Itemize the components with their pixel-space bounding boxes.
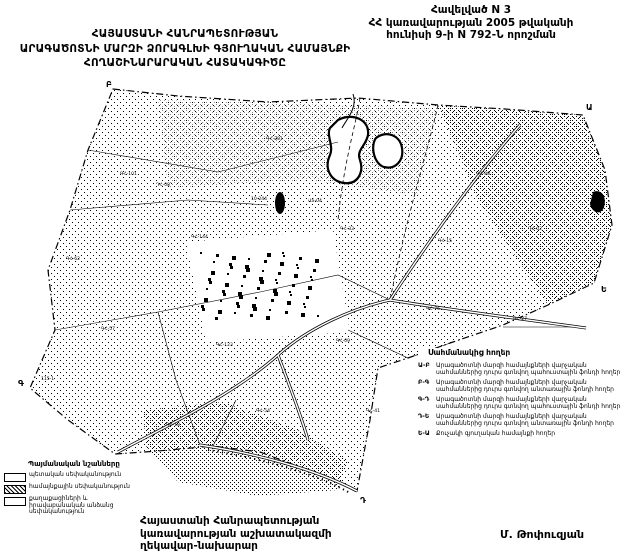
building bbox=[269, 309, 271, 311]
building bbox=[250, 314, 253, 317]
building bbox=[306, 296, 309, 299]
building bbox=[283, 255, 285, 257]
building bbox=[311, 279, 313, 281]
title-line-1: ՀԱՅԱՍՏԱՆԻ ՀԱՆՐԱՊԵՏՈՒԹՅԱՆ bbox=[18, 27, 352, 42]
building bbox=[206, 288, 208, 290]
building bbox=[264, 260, 267, 263]
vertex-label: Բ bbox=[106, 80, 112, 89]
parcel-label: ԴՀ-08 bbox=[156, 182, 170, 188]
building bbox=[301, 313, 305, 317]
parcel-label: ԳՀ-09 bbox=[336, 338, 350, 344]
private-ownership-swatch bbox=[4, 497, 26, 506]
building bbox=[229, 263, 232, 266]
building bbox=[216, 254, 219, 257]
building bbox=[248, 258, 250, 260]
building bbox=[296, 264, 298, 266]
parcel-label: ԳՀ-101 bbox=[120, 171, 137, 177]
building bbox=[238, 292, 242, 296]
building bbox=[215, 317, 218, 320]
building bbox=[287, 301, 291, 305]
legend-item-label: քաղաքացիների և իրավաբանական անձանց սեփակ… bbox=[29, 496, 141, 516]
adjacent-lands-title: Սահմանակից հողեր bbox=[428, 348, 630, 357]
building bbox=[232, 256, 236, 260]
legend-item-community: համայնքային սեփականություն bbox=[4, 484, 144, 494]
segment-description: Արագածոտնի մարզի համայնքների վարչական սա… bbox=[436, 362, 630, 376]
parcel-label: ԳՀ-27 bbox=[513, 316, 527, 322]
pond bbox=[275, 192, 285, 214]
document-page: Հավելված N 3 ՀՀ կառավարության 2005 թվակա… bbox=[0, 0, 633, 556]
building bbox=[290, 294, 292, 296]
segment-description: Քուչակի գյուղական համայնքի հողեր bbox=[436, 430, 630, 437]
building bbox=[297, 267, 299, 269]
building bbox=[313, 269, 316, 272]
vertex-label: Դ bbox=[360, 496, 366, 505]
building bbox=[262, 270, 264, 272]
annex-line-1: Հավելված N 3 bbox=[320, 4, 622, 17]
segment-code: Ա-Բ bbox=[418, 362, 436, 376]
adjacent-lands-entry: Գ-Դ Արագածոտնի մարզի համայնքների վարչակա… bbox=[418, 396, 630, 410]
adjacent-lands-entry: Ա-Բ Արագածոտնի մարզի համայնքների վարչակա… bbox=[418, 362, 630, 376]
building bbox=[280, 262, 284, 266]
building bbox=[211, 271, 215, 275]
legend-item-label: պետական սեփականություն bbox=[29, 472, 141, 479]
parcel-label: ԳՀ-123 bbox=[216, 342, 233, 348]
building bbox=[257, 287, 260, 290]
legend-item-state: պետական սեփականություն bbox=[4, 472, 144, 482]
building bbox=[276, 282, 278, 284]
parcel-label: 10-244 bbox=[251, 196, 267, 202]
building bbox=[282, 252, 284, 254]
building bbox=[201, 305, 204, 308]
building bbox=[245, 265, 249, 269]
building bbox=[200, 252, 202, 254]
segment-code: Բ-Գ bbox=[418, 379, 436, 393]
parcel-label: ԳՀ-18 bbox=[166, 422, 180, 428]
footer-line-1: Հայաստանի Հանրապետության bbox=[140, 515, 332, 528]
building bbox=[202, 308, 205, 311]
building bbox=[303, 303, 305, 305]
building bbox=[255, 297, 257, 299]
adjacent-lands-entry: Դ-Ե Արագածոտնի մարզի համայնքների վարչակա… bbox=[418, 413, 630, 427]
building bbox=[209, 281, 212, 284]
segment-description: Արագածոտնի մարզի համայնքների վարչական սա… bbox=[436, 379, 630, 393]
vertex-label: Ե bbox=[601, 285, 607, 294]
parcel-label: ԳՀ-57 bbox=[101, 326, 115, 332]
building bbox=[223, 293, 226, 296]
signing-authority: Հայաստանի Հանրապետության կառավարության ա… bbox=[140, 515, 332, 553]
footer-line-3: ղեկավար-նախարար bbox=[140, 540, 332, 553]
building bbox=[218, 310, 222, 314]
building bbox=[243, 275, 246, 278]
parcel-label: ԳՀ-144 bbox=[191, 234, 208, 240]
building bbox=[241, 285, 243, 287]
building bbox=[267, 253, 271, 257]
building bbox=[237, 305, 240, 308]
building bbox=[294, 274, 298, 278]
parcel-label: ԳՀ-15 bbox=[438, 238, 452, 244]
community-land-map: ԳՀ-101ԴՀ-08ԳՀ-144ԳՀ-62ԳՀ-20110-244ՎՏ-04Գ… bbox=[8, 80, 628, 510]
parcel-label: ԳՀ-33 bbox=[340, 226, 354, 232]
building bbox=[204, 298, 208, 302]
building bbox=[271, 299, 274, 302]
adjacent-lands-list: Սահմանակից հողեր Ա-Բ Արագածոտնի մարզի հա… bbox=[418, 348, 630, 442]
community-ownership-swatch bbox=[4, 485, 26, 494]
building bbox=[236, 302, 239, 305]
parcel-label: ԳՀ-76 bbox=[426, 306, 440, 312]
building bbox=[220, 300, 222, 302]
building bbox=[289, 291, 291, 293]
building bbox=[230, 266, 233, 269]
building bbox=[273, 289, 277, 293]
annex-line-2: ՀՀ կառավարության 2005 թվականի bbox=[320, 17, 622, 30]
parcel-label: ԳՀ-41 bbox=[366, 408, 380, 414]
building bbox=[259, 277, 263, 281]
parcel-label: ԳՀ-201 bbox=[266, 136, 283, 142]
building bbox=[222, 290, 225, 293]
building bbox=[225, 283, 229, 287]
state-ownership-swatch bbox=[4, 473, 26, 482]
title-line-2: ԱՐԱԳԱԾՈՏՆԻ ՄԱՐԶԻ ՁՈՐԱԳԼԽԻ ԳՅՈՒՂԱԿԱՆ ՀԱՄԱ… bbox=[18, 42, 352, 57]
parcel-label: 115-1 bbox=[41, 376, 54, 382]
segment-code: Գ-Դ bbox=[418, 396, 436, 410]
lake-small bbox=[373, 134, 402, 167]
vertex-label: Գ bbox=[18, 379, 24, 388]
legend-item-private: քաղաքացիների և իրավաբանական անձանց սեփակ… bbox=[4, 496, 144, 516]
parcel-label: ՎՏ-04 bbox=[308, 198, 322, 204]
legend-title: Պայմանական նշանները bbox=[28, 460, 144, 468]
segment-description: Արագածոտնի մարզի համայնքների վարչական սա… bbox=[436, 413, 630, 427]
building bbox=[292, 284, 295, 287]
building bbox=[227, 273, 229, 275]
annex-header: Հավելված N 3 ՀՀ կառավարության 2005 թվակա… bbox=[320, 4, 622, 42]
segment-code: Ե-Ա bbox=[418, 430, 436, 437]
parcel-label: ԳՀ-62 bbox=[66, 256, 80, 262]
map-legend: Պայմանական նշանները պետական սեփականությո… bbox=[4, 460, 144, 518]
building bbox=[266, 316, 270, 320]
building bbox=[213, 261, 215, 263]
building bbox=[252, 304, 256, 308]
annex-line-3: հունիսի 9-ի N 792-Ն որոշման bbox=[320, 29, 622, 42]
page-title: ՀԱՅԱՍՏԱՆԻ ՀԱՆՐԱՊԵՏՈՒԹՅԱՆ ԱՐԱԳԱԾՈՏՆԻ ՄԱՐԶ… bbox=[18, 27, 352, 71]
adjacent-lands-entry: Բ-Գ Արագածոտնի մարզի համայնքների վարչակա… bbox=[418, 379, 630, 393]
building bbox=[234, 312, 236, 314]
title-line-3: ՀՈՂԱՇԻՆԱՐԱՐԱԿԱՆ ՀԱՏԱԿԱԳԻԾԸ bbox=[18, 56, 352, 71]
building bbox=[299, 257, 302, 260]
vertex-label: Ա bbox=[586, 103, 593, 112]
legend-item-label: համայնքային սեփականություն bbox=[29, 484, 141, 491]
parcel-label: ԳՀ-88 bbox=[476, 171, 490, 177]
building bbox=[315, 259, 319, 263]
building bbox=[208, 278, 211, 281]
building bbox=[310, 276, 312, 278]
signature-name: Մ. Թոփուզյան bbox=[500, 528, 584, 541]
parcel-label: ԴՀ-02 bbox=[528, 226, 542, 232]
building bbox=[317, 315, 319, 317]
adjacent-lands-entry: Ե-Ա Քուչակի գյուղական համայնքի հողեր bbox=[418, 430, 630, 437]
footer-line-2: կառավարության աշխատակազմի bbox=[140, 528, 332, 541]
building bbox=[275, 279, 277, 281]
building bbox=[285, 311, 288, 314]
settlement-clearing bbox=[186, 230, 350, 342]
segment-description: Արագածոտնի մարզի համայնքների վարչական սա… bbox=[436, 396, 630, 410]
segment-code: Դ-Ե bbox=[418, 413, 436, 427]
building bbox=[278, 272, 281, 275]
building bbox=[304, 306, 306, 308]
parcel-label: ԳՀ-54 bbox=[256, 408, 270, 414]
building bbox=[308, 286, 312, 290]
